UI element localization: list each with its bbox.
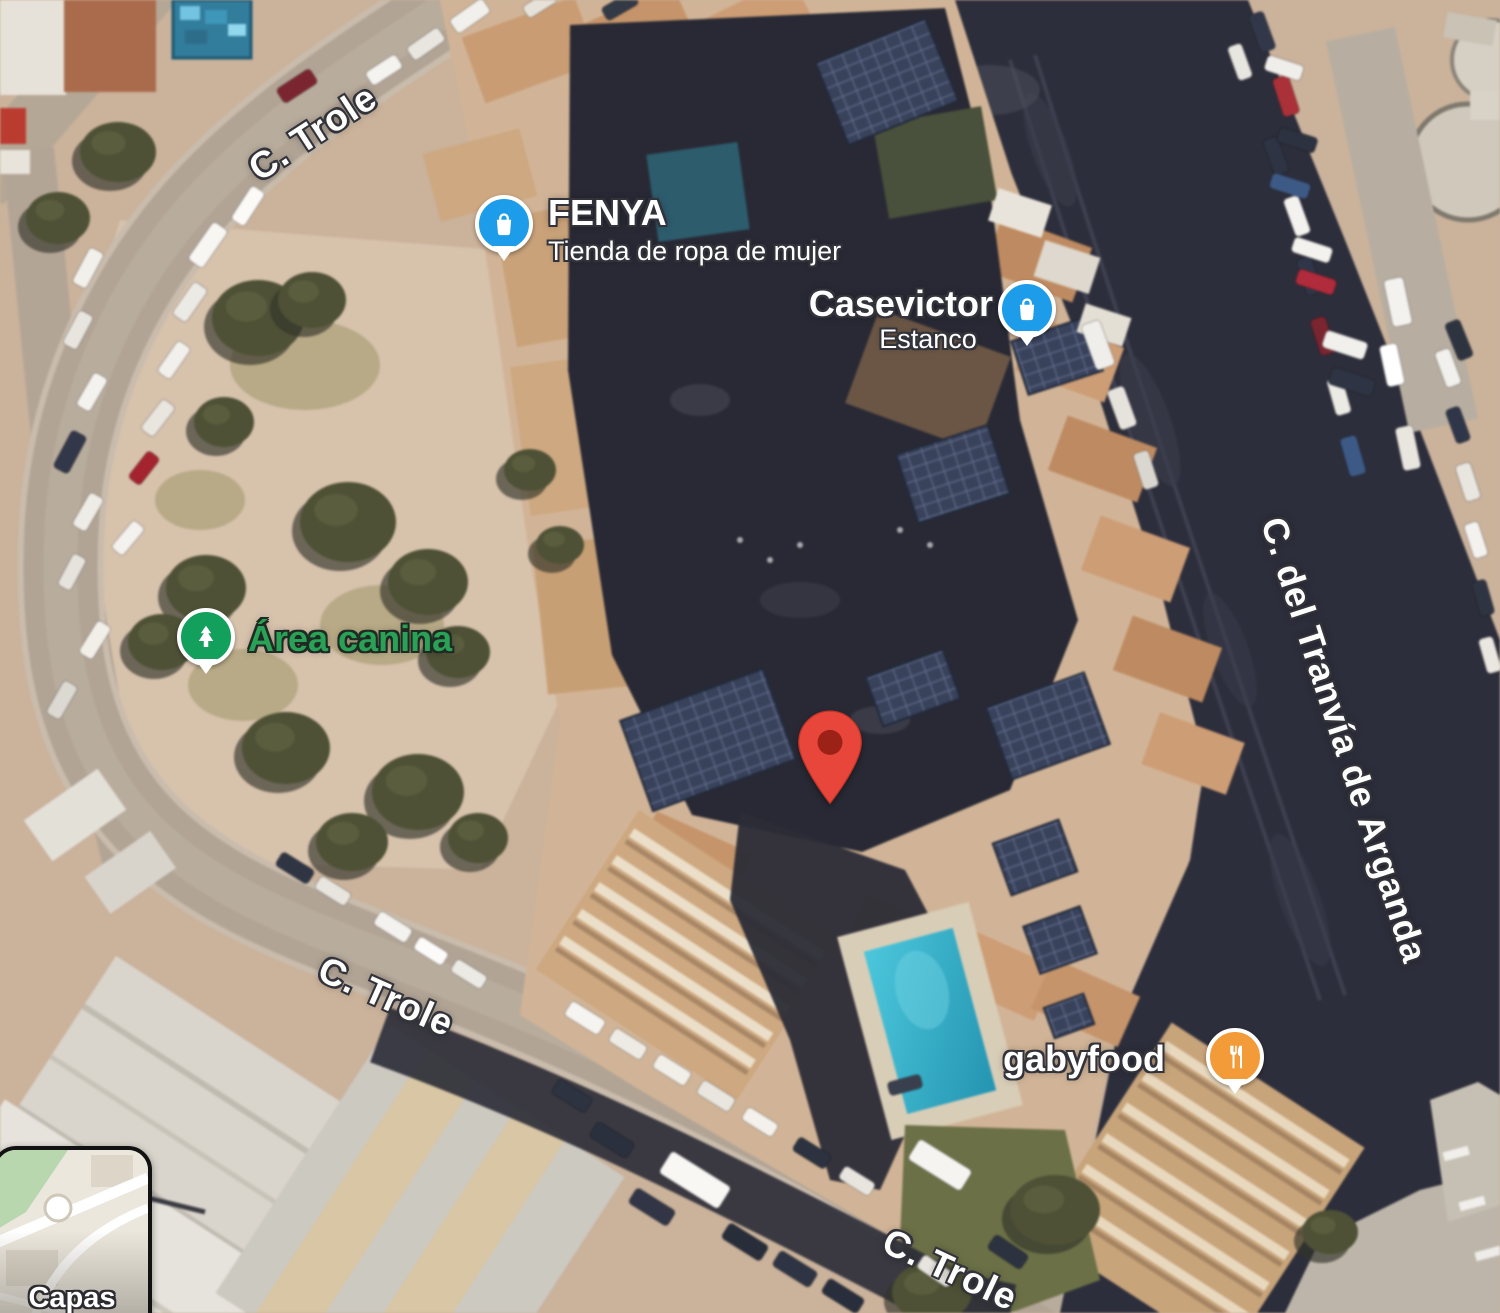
layers-control[interactable]: Capas <box>0 1146 152 1313</box>
layers-label[interactable]: Capas <box>0 1282 148 1313</box>
tree-icon <box>191 622 221 652</box>
shopping-bag-pin-icon[interactable] <box>998 280 1056 338</box>
shopping-bag-icon <box>1012 294 1042 324</box>
shopping-bag-pin-icon[interactable] <box>475 195 533 253</box>
rooftop-pool <box>646 142 749 242</box>
selected-location-pin[interactable] <box>792 708 868 808</box>
restaurant-icon <box>1220 1042 1250 1072</box>
map-viewport[interactable]: C. Trole C. Trole C. Trole C. del Tranví… <box>0 0 1500 1313</box>
shopping-bag-icon <box>489 209 519 239</box>
map-pin-icon <box>792 708 868 808</box>
tree-pin-icon[interactable] <box>177 608 235 666</box>
restaurant-pin-icon[interactable] <box>1206 1028 1264 1086</box>
